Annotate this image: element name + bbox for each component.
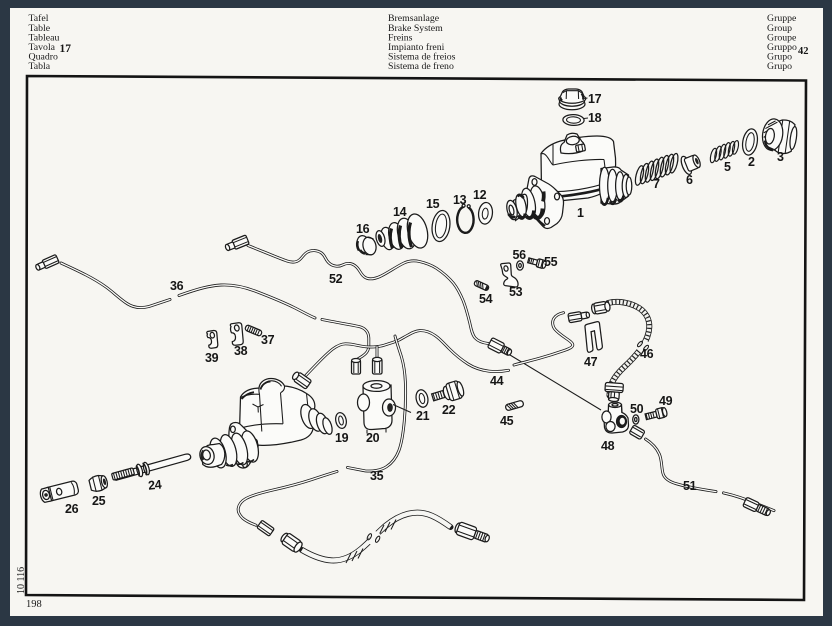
svg-text:50: 50 [630, 402, 644, 416]
svg-text:5: 5 [724, 160, 731, 174]
svg-text:19: 19 [335, 431, 349, 445]
svg-text:47: 47 [584, 355, 598, 369]
svg-text:55: 55 [544, 255, 558, 269]
svg-text:Sistema de freno: Sistema de freno [388, 61, 454, 72]
svg-text:44: 44 [490, 374, 504, 388]
svg-text:45: 45 [500, 414, 514, 428]
svg-text:51: 51 [683, 479, 697, 493]
svg-text:25: 25 [92, 494, 106, 508]
svg-text:3: 3 [777, 150, 784, 164]
svg-text:48: 48 [601, 439, 615, 453]
svg-text:49: 49 [659, 394, 673, 408]
svg-text:2: 2 [748, 155, 755, 169]
svg-text:14: 14 [393, 205, 407, 219]
svg-text:24: 24 [147, 477, 162, 492]
svg-text:26: 26 [65, 502, 79, 516]
svg-text:Tabla: Tabla [29, 61, 51, 72]
svg-text:20: 20 [366, 431, 380, 445]
svg-text:198: 198 [26, 599, 42, 610]
svg-text:54: 54 [479, 292, 493, 306]
svg-text:56: 56 [513, 248, 527, 262]
svg-text:38: 38 [234, 344, 248, 358]
svg-text:Grupo: Grupo [767, 61, 792, 72]
svg-text:10 116: 10 116 [16, 567, 27, 594]
svg-text:7: 7 [653, 177, 660, 191]
svg-text:37: 37 [261, 333, 275, 347]
svg-text:22: 22 [442, 403, 456, 417]
svg-text:17: 17 [588, 92, 602, 106]
svg-text:17: 17 [60, 43, 72, 55]
svg-text:6: 6 [686, 173, 693, 187]
svg-text:18: 18 [588, 111, 602, 125]
svg-text:1: 1 [577, 206, 584, 220]
svg-text:16: 16 [356, 222, 370, 236]
svg-text:52: 52 [329, 272, 343, 286]
svg-text:13: 13 [453, 193, 467, 207]
svg-text:39: 39 [205, 351, 219, 365]
svg-text:15: 15 [426, 197, 440, 211]
svg-text:46: 46 [640, 347, 654, 361]
svg-text:36: 36 [170, 279, 184, 293]
svg-text:42: 42 [798, 46, 809, 57]
svg-text:12: 12 [473, 188, 487, 202]
svg-text:53: 53 [509, 285, 523, 299]
svg-text:35: 35 [370, 469, 384, 483]
svg-text:21: 21 [416, 409, 430, 423]
